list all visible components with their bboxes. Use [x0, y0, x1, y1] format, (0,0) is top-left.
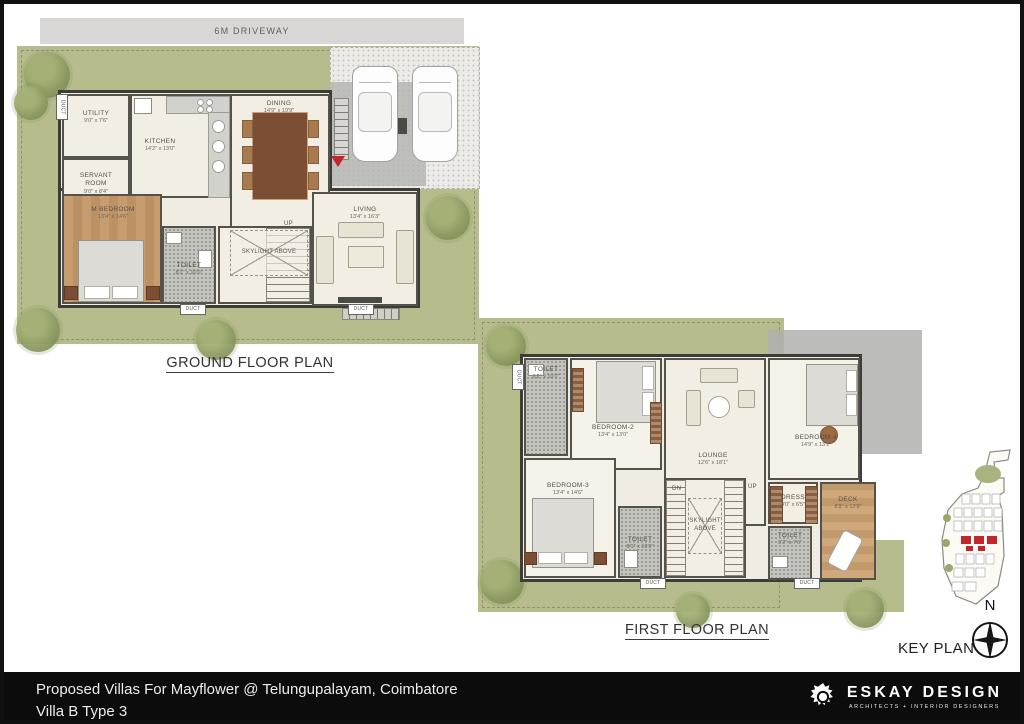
- car: [352, 66, 398, 162]
- hob-burner: [197, 99, 204, 106]
- brand-text: ESKAY DESIGN ARCHITECTS + INTERIOR DESIG…: [847, 684, 1002, 710]
- driveway-label: 6M DRIVEWAY: [214, 26, 289, 36]
- side-table: [524, 552, 537, 565]
- car-windshield: [419, 82, 451, 83]
- project-title: Proposed Villas For Mayflower @ Telungup…: [36, 679, 458, 723]
- label-toilet4: TOILET 9'2" x 7'6": [778, 532, 802, 548]
- duct-label: DUCT: [640, 578, 666, 589]
- project-line1: Proposed Villas For Mayflower @ Telungup…: [36, 679, 458, 701]
- dining-chair: [308, 146, 319, 164]
- label-living: LIVING 13'4" x 16'3": [350, 206, 380, 222]
- car-roof: [418, 92, 452, 132]
- side-table: [594, 552, 607, 565]
- label-toilet3: TOILET 8'1" x 10'0": [626, 536, 653, 552]
- up-annotation-ground: UP: [284, 221, 293, 227]
- duct-label: DUCT: [180, 304, 206, 315]
- coffee-table: [348, 246, 384, 268]
- ground-floor-title: GROUND FLOOR PLAN: [150, 354, 350, 373]
- round-table: [708, 396, 730, 418]
- toilet-fixture: [772, 556, 788, 568]
- brand-name: ESKAY DESIGN: [847, 684, 1002, 702]
- label-utility: UTILITY 9'0" x 7'6": [83, 110, 109, 126]
- label-m-bedroom: M BEDROOM 13'4" x 14'6": [91, 206, 135, 222]
- hob-burner: [206, 99, 213, 106]
- project-line2: Villa B Type 3: [36, 701, 458, 723]
- dining-table: [252, 112, 308, 200]
- pillow: [846, 370, 857, 392]
- label-bedroom4: BEDROOM-4 14'9" x 13'1": [795, 434, 837, 450]
- sink-icon: [212, 120, 225, 133]
- dining-chair: [308, 120, 319, 138]
- car: [412, 66, 458, 162]
- skylight-label: SKYLIGHT ABOVE: [689, 518, 721, 534]
- entry-steps: [334, 98, 349, 160]
- skylight-ground: SKYLIGHT ABOVE: [230, 230, 308, 276]
- car-windshield: [359, 82, 391, 83]
- staircase-first: [666, 480, 686, 576]
- label-kitchen: KITCHEN 14'2" x 13'0": [145, 138, 176, 154]
- wardrobe: [650, 402, 662, 444]
- room-utility: [62, 94, 130, 158]
- armchair: [738, 390, 755, 408]
- title-bar: Proposed Villas For Mayflower @ Telungup…: [0, 672, 1024, 724]
- dining-chair: [242, 120, 253, 138]
- label-dining: DINING 14'9" x 19'9": [264, 100, 294, 116]
- first-floor-title: FIRST FLOOR PLAN: [597, 621, 797, 640]
- sheet: 6M DRIVEWAY SKYLIGHT ABOVE: [0, 0, 1024, 724]
- sink-icon: [212, 140, 225, 153]
- staircase-first: [724, 480, 744, 576]
- up-annotation-first: UP: [748, 484, 757, 490]
- tv-unit: [338, 297, 382, 303]
- tree: [14, 86, 48, 120]
- sofa: [686, 390, 701, 426]
- north-compass-svg: N: [964, 594, 1016, 666]
- dining-chair: [308, 172, 319, 190]
- green-patch: [975, 465, 1001, 483]
- label-servant: SERVANT ROOM 9'0" x 8'4": [70, 172, 122, 196]
- gate-pillar: [398, 118, 407, 134]
- label-dress: DRESS 8'0" x 6'5": [781, 494, 805, 510]
- north-compass: N: [964, 594, 1016, 666]
- pillow: [538, 552, 562, 564]
- side-table: [146, 286, 160, 300]
- toilet-fixture: [624, 550, 638, 568]
- pillow: [84, 286, 110, 299]
- pillow: [642, 366, 654, 390]
- tree: [846, 590, 884, 628]
- duct-label: DUCT: [512, 364, 524, 390]
- dn-annotation: DN: [672, 486, 681, 492]
- car-roof: [358, 92, 392, 132]
- toilet-fixture: [166, 232, 182, 244]
- sofa: [396, 230, 414, 284]
- label-toilet-ground: TOILET 8'1" x 10'0": [175, 262, 202, 278]
- label-bedroom3: BEDROOM-3 13'4" x 14'6": [547, 482, 589, 498]
- skylight-label: SKYLIGHT ABOVE: [242, 249, 296, 257]
- key-plan-label: KEY PLAN: [898, 640, 974, 657]
- tree: [16, 308, 60, 352]
- label-lounge: LOUNGE 12'6" x 18'1": [698, 452, 728, 468]
- entry-arrow-icon: [331, 156, 345, 167]
- pillow: [564, 552, 588, 564]
- wardrobe: [805, 486, 818, 524]
- lion-icon: [807, 681, 839, 713]
- skylight-first: SKYLIGHT ABOVE: [688, 498, 722, 554]
- driveway-bar: 6M DRIVEWAY: [40, 18, 464, 44]
- hob-burner: [197, 106, 204, 113]
- dining-chair: [242, 146, 253, 164]
- sofa: [316, 236, 334, 284]
- tree: [426, 196, 470, 240]
- pillow: [846, 394, 857, 416]
- dining-chair: [242, 172, 253, 190]
- duct-label: DUCT: [348, 304, 374, 315]
- label-bedroom2: BEDROOM-2 13'4" x 13'0": [592, 424, 634, 440]
- side-table: [64, 286, 78, 300]
- kitchen-sink: [134, 98, 152, 114]
- duct-label: DUCT: [56, 94, 68, 120]
- north-label: N: [985, 597, 996, 614]
- pillow: [112, 286, 138, 299]
- tree: [480, 560, 524, 604]
- sofa: [338, 222, 384, 238]
- brand-logo: ESKAY DESIGN ARCHITECTS + INTERIOR DESIG…: [807, 681, 1002, 713]
- brand-tagline: ARCHITECTS + INTERIOR DESIGNERS: [849, 704, 1000, 710]
- duct-label: DUCT: [794, 578, 820, 589]
- label-deck: DECK 8'9" x 12'9": [834, 496, 861, 512]
- label-toilet2: TOILET 6'2" x 10'0": [532, 366, 559, 382]
- sofa: [700, 368, 738, 383]
- sink-icon: [212, 160, 225, 173]
- wardrobe: [572, 368, 584, 412]
